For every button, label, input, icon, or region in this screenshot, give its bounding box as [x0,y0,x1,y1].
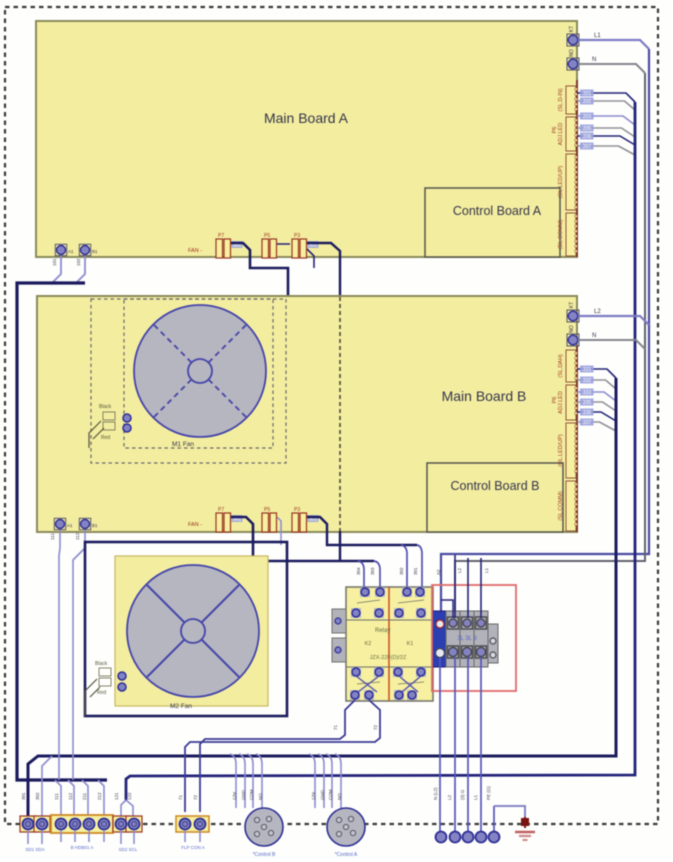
svg-text:JZX-22F(D)/2Z: JZX-22F(D)/2Z [370,655,407,661]
svg-text:Main Board A: Main Board A [264,110,349,126]
svg-text:P7: P7 [218,507,224,513]
svg-text:P6: P6 [552,397,558,404]
svg-text:P3: P3 [294,507,300,513]
svg-text:FLP CON A: FLP CON A [181,845,204,850]
svg-text:335: 335 [583,400,592,406]
svg-text:332: 332 [583,378,592,384]
svg-text:Black: Black [95,661,108,667]
svg-text:303: 303 [370,567,375,575]
svg-text:N: N [592,333,596,339]
svg-text:111: 111 [54,793,59,800]
svg-text:304: 304 [356,567,361,575]
svg-text:211: 211 [82,792,87,800]
svg-text:337: 337 [583,420,592,426]
svg-text:112: 112 [68,792,73,800]
svg-text:12V: 12V [232,792,237,800]
svg-text:71: 71 [333,724,338,730]
svg-text:(DL.COMM): (DL.COMM) [558,220,564,250]
svg-text:(OL.LED/UP): (OL.LED/UP) [558,166,564,199]
svg-text:ADJ.LED: ADJ.LED [558,391,564,414]
svg-text:N (L2): N (L2) [433,787,438,800]
svg-text:212: 212 [97,792,102,800]
svg-text:COM: COM [249,789,254,800]
svg-text:(SL.DAH): (SL.DAH) [558,354,564,378]
svg-text:Main Board B: Main Board B [442,388,527,404]
svg-text:201: 201 [583,91,592,97]
svg-text:KT: KT [569,302,575,308]
svg-text:302: 302 [35,792,40,800]
svg-text:K1: K1 [407,641,414,647]
svg-text:PE (G): PE (G) [486,786,491,800]
svg-text:P3: P3 [294,233,300,239]
svg-text:3L 3L 3: 3L 3L 3 [457,636,477,642]
svg-text:GND: GND [241,789,246,800]
svg-text:71: 71 [178,794,183,800]
svg-text:(SL.COMM): (SL.COMM) [558,491,564,521]
svg-text:333: 333 [583,390,592,396]
svg-text:L2: L2 [594,309,601,315]
svg-text:L1: L1 [594,33,601,39]
svg-text:P5: P5 [264,233,270,239]
svg-text:Control Board A: Control Board A [453,204,542,218]
svg-text:M1 Fan: M1 Fan [172,441,194,448]
svg-text:102: 102 [76,258,81,266]
svg-text:112: 112 [75,532,80,540]
svg-text:ADJ.LED: ADJ.LED [558,123,564,146]
svg-text:B1: B1 [92,249,98,254]
svg-text:101: 101 [52,258,57,266]
svg-text:Black: Black [99,404,112,410]
svg-text:202: 202 [583,99,592,105]
svg-text:301: 301 [21,792,26,800]
svg-text:B HDB01 A: B HDB01 A [71,845,94,850]
svg-text:(SL.D-IN): (SL.D-IN) [558,88,564,111]
svg-text:331: 331 [583,367,592,373]
svg-text:121: 121 [114,792,119,800]
svg-text:NO: NO [258,793,263,800]
svg-text:(OL.LED/UP): (OL.LED/UP) [558,434,564,467]
svg-text:SD2 SCL: SD2 SCL [119,847,138,852]
svg-text:N: N [592,57,596,63]
svg-text:L2: L2 [457,567,462,573]
svg-text:A1: A1 [67,523,73,528]
svg-text:FAN -: FAN - [188,248,202,254]
svg-text:P7: P7 [218,233,224,239]
svg-text:NO: NO [569,49,575,57]
svg-text:301: 301 [413,567,418,575]
svg-text:Red: Red [101,435,110,441]
svg-text:COM: COM [328,789,333,800]
svg-text:NO: NO [569,325,575,333]
svg-text:72: 72 [373,724,378,730]
svg-text:L2: L2 [447,794,452,800]
svg-text:NO: NO [337,793,342,800]
svg-text:*Control A: *Control A [335,852,358,857]
svg-text:205: 205 [583,126,592,132]
svg-text:B1: B1 [92,523,98,528]
svg-text:Relay: Relay [375,628,390,634]
svg-text:A2: A2 [436,569,441,575]
svg-text:L1: L1 [484,567,489,573]
svg-text:GND: GND [320,789,325,800]
svg-text:*Control B: *Control B [253,852,276,857]
svg-text:M2 Fan: M2 Fan [170,703,192,710]
svg-text:Control Board B: Control Board B [451,479,540,493]
svg-text:SD1 SDA: SD1 SDA [25,847,44,852]
svg-text:336: 336 [583,410,592,416]
svg-text:KT: KT [569,26,575,32]
svg-text:K2: K2 [365,641,372,647]
svg-text:207: 207 [583,144,592,150]
svg-text:203: 203 [583,114,592,120]
svg-text:12V: 12V [311,792,316,800]
svg-text:P5: P5 [264,507,270,513]
svg-text:302: 302 [399,567,404,575]
svg-text:P6: P6 [552,127,558,134]
svg-text:(3) G: (3) G [460,789,465,800]
svg-text:A1: A1 [68,249,74,254]
svg-text:206: 206 [583,134,592,140]
svg-text:L1: L1 [473,794,478,800]
svg-text:122: 122 [127,792,132,800]
svg-text:FAN -: FAN - [188,522,202,528]
svg-text:72: 72 [193,794,198,800]
svg-text:111: 111 [50,533,55,540]
svg-text:Red: Red [97,690,106,696]
